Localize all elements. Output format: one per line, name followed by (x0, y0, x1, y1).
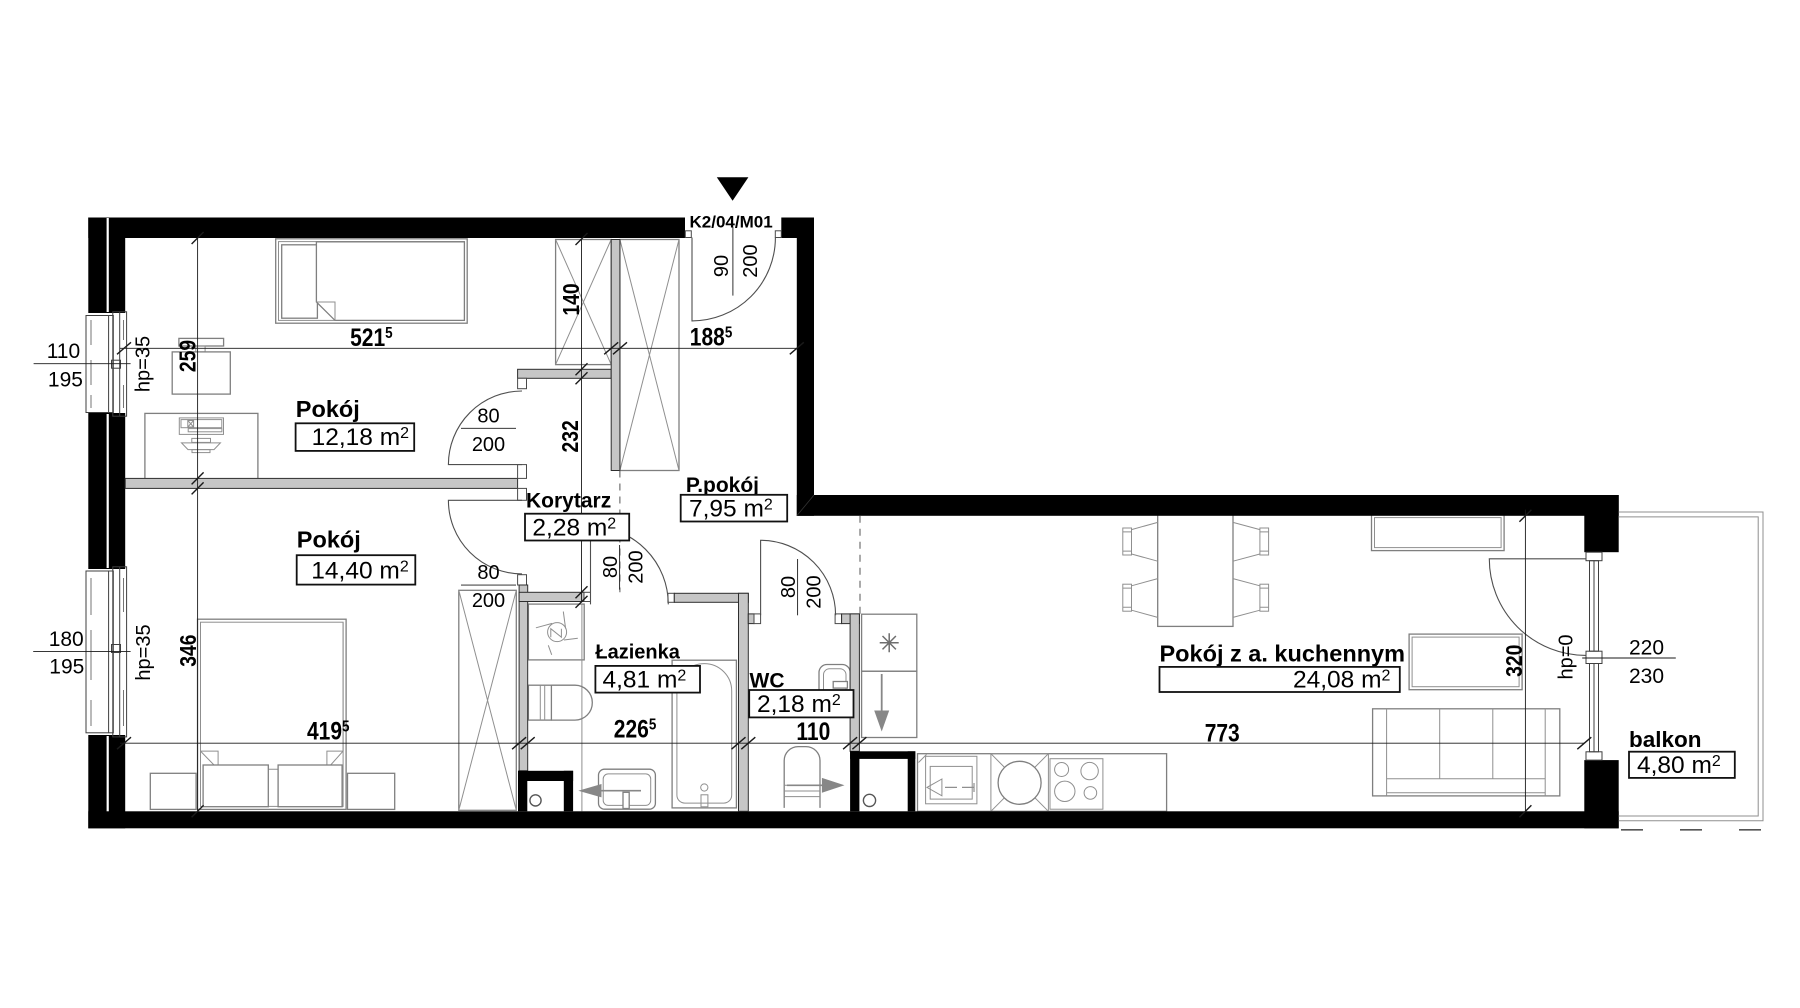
svg-text:80: 80 (477, 406, 499, 428)
svg-text:200: 200 (626, 550, 648, 583)
svg-text:220: 220 (1629, 637, 1664, 660)
svg-text:200: 200 (472, 590, 505, 612)
svg-text:Pokój: Pokój (297, 526, 361, 552)
svg-text:140: 140 (560, 283, 585, 315)
svg-text:Pokój z a. kuchennym: Pokój z a. kuchennym (1160, 640, 1406, 666)
svg-text:80: 80 (477, 562, 499, 584)
svg-text:24,08 m2: 24,08 m2 (1293, 667, 1391, 694)
svg-text:12,18 m2: 12,18 m2 (312, 424, 410, 451)
svg-text:balkon: balkon (1629, 727, 1702, 752)
svg-text:WC: WC (750, 669, 785, 692)
svg-text:320: 320 (1503, 645, 1528, 677)
svg-text:P.pokój: P.pokój (686, 474, 759, 497)
svg-text:110: 110 (47, 340, 80, 363)
svg-text:200: 200 (472, 434, 505, 456)
svg-text:80: 80 (600, 556, 622, 578)
svg-text:Łazienka: Łazienka (595, 641, 680, 663)
svg-text:4,80 m2: 4,80 m2 (1637, 752, 1721, 779)
svg-text:hp=35: hp=35 (132, 336, 154, 392)
svg-text:195: 195 (49, 656, 84, 679)
svg-text:195: 195 (48, 368, 83, 391)
svg-text:hp=35: hp=35 (133, 624, 155, 680)
svg-text:200: 200 (740, 244, 762, 277)
svg-text:230: 230 (1629, 665, 1664, 688)
svg-text:K2/04/M01: K2/04/M01 (690, 212, 773, 231)
svg-text:80: 80 (778, 576, 800, 598)
svg-text:90: 90 (711, 255, 733, 277)
svg-text:7,95 m2: 7,95 m2 (689, 496, 773, 523)
svg-text:2,18 m2: 2,18 m2 (757, 691, 841, 718)
svg-text:2,28 m2: 2,28 m2 (532, 515, 616, 542)
svg-text:4,81 m2: 4,81 m2 (603, 667, 687, 694)
svg-text:110: 110 (796, 717, 830, 745)
svg-text:14,40 m2: 14,40 m2 (311, 557, 409, 584)
svg-text:180: 180 (49, 628, 84, 651)
svg-text:200: 200 (804, 575, 826, 608)
svg-text:hp=0: hp=0 (1556, 634, 1578, 679)
svg-text:232: 232 (559, 420, 584, 452)
svg-text:259: 259 (176, 340, 201, 372)
svg-text:Pokój: Pokój (296, 396, 360, 422)
svg-text:Korytarz: Korytarz (526, 490, 611, 513)
svg-text:346: 346 (177, 634, 202, 666)
svg-text:773: 773 (1205, 719, 1240, 747)
